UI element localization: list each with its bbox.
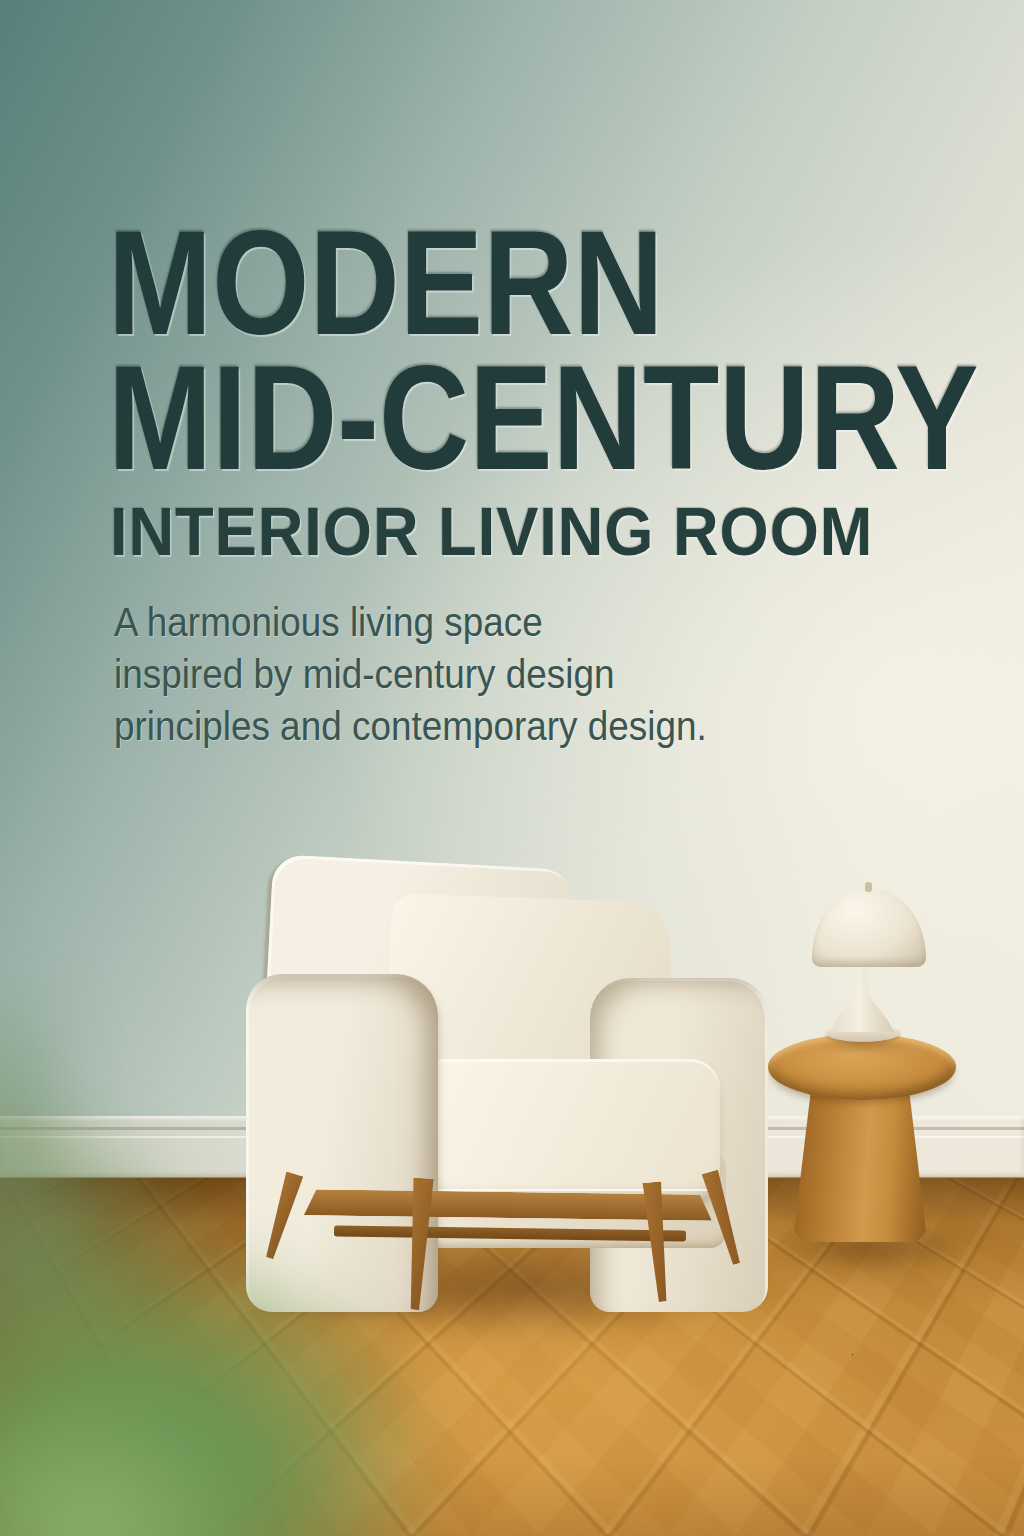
poster-description: A harmonious living space inspired by mi… — [114, 596, 707, 752]
armchair-left-arm — [246, 974, 438, 1312]
poster-description-line1: A harmonious living space — [114, 596, 707, 648]
poster-title: MODERN MID-CENTURY — [108, 215, 979, 485]
armchair-seat-cushion — [418, 1059, 720, 1201]
poster-description-line3: principles and contemporary design. — [114, 700, 707, 752]
poster-description-line2: inspired by mid-century design — [114, 648, 707, 700]
poster-canvas: MODERN MID-CENTURY INTERIOR LIVING ROOM … — [0, 0, 1024, 1536]
lamp-finial — [865, 882, 872, 892]
poster-subtitle: INTERIOR LIVING ROOM — [110, 497, 873, 565]
poster-title-line2: MID-CENTURY — [108, 350, 979, 485]
cream-armchair — [238, 856, 778, 1326]
poster-title-line1: MODERN — [108, 215, 979, 350]
